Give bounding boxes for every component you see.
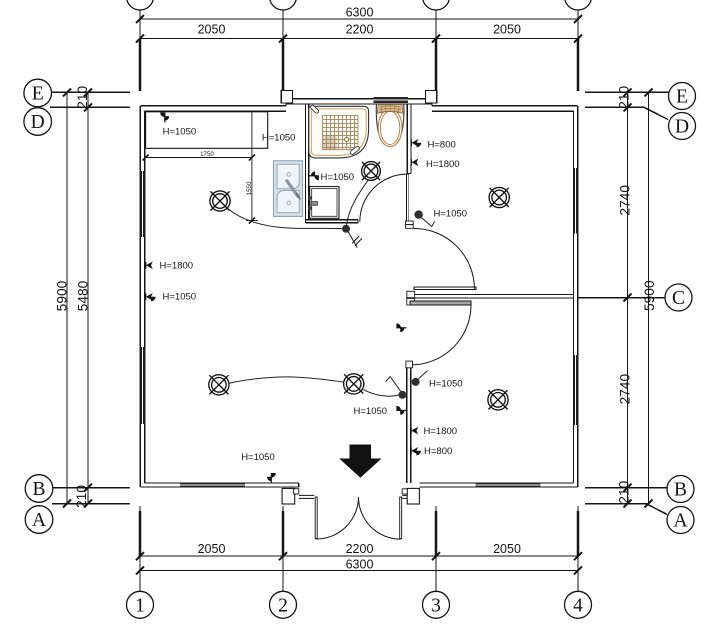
- svg-text:1550: 1550: [246, 181, 253, 195]
- svg-text:5900: 5900: [642, 280, 657, 311]
- svg-text:H=1050: H=1050: [262, 133, 296, 144]
- svg-text:1: 1: [135, 595, 145, 616]
- svg-text:H=1800: H=1800: [426, 159, 460, 170]
- svg-text:1750: 1750: [200, 151, 214, 158]
- svg-text:3: 3: [431, 595, 441, 616]
- svg-text:6300: 6300: [346, 557, 374, 571]
- svg-text:D: D: [675, 117, 689, 138]
- svg-text:2050: 2050: [493, 23, 521, 37]
- svg-text:C: C: [672, 288, 685, 309]
- svg-text:2200: 2200: [346, 542, 374, 556]
- svg-text:2050: 2050: [198, 23, 226, 37]
- svg-text:H=1800: H=1800: [424, 426, 458, 437]
- svg-text:210: 210: [617, 480, 632, 503]
- svg-text:H=800: H=800: [424, 446, 452, 457]
- svg-text:E: E: [676, 87, 688, 108]
- svg-text:H=1050: H=1050: [163, 292, 197, 303]
- svg-text:H=800: H=800: [428, 140, 456, 151]
- svg-text:H=1050: H=1050: [354, 406, 388, 417]
- svg-text:H=1050: H=1050: [434, 208, 468, 219]
- svg-text:210: 210: [74, 485, 89, 508]
- svg-text:2200: 2200: [346, 23, 374, 37]
- svg-text:5480: 5480: [76, 280, 91, 311]
- svg-text:210: 210: [617, 85, 632, 108]
- svg-text:B: B: [32, 479, 45, 500]
- svg-text:2050: 2050: [493, 542, 521, 556]
- svg-text:D: D: [31, 112, 45, 133]
- svg-text:H=1050: H=1050: [163, 127, 197, 138]
- svg-text:2: 2: [278, 595, 288, 616]
- svg-text:4: 4: [573, 595, 583, 616]
- svg-text:210: 210: [75, 85, 90, 108]
- svg-text:H=1050: H=1050: [321, 172, 355, 183]
- svg-text:5900: 5900: [55, 280, 70, 311]
- svg-text:2740: 2740: [618, 185, 633, 216]
- svg-text:2740: 2740: [618, 374, 633, 405]
- svg-text:H=1050: H=1050: [241, 452, 275, 463]
- svg-text:A: A: [32, 510, 46, 531]
- svg-text:2050: 2050: [198, 542, 226, 556]
- svg-text:H=1800: H=1800: [160, 261, 194, 272]
- svg-text:B: B: [674, 480, 687, 501]
- svg-text:A: A: [673, 511, 687, 532]
- svg-text:6300: 6300: [346, 6, 374, 20]
- svg-text:H=1050: H=1050: [429, 379, 463, 390]
- svg-text:E: E: [32, 84, 44, 105]
